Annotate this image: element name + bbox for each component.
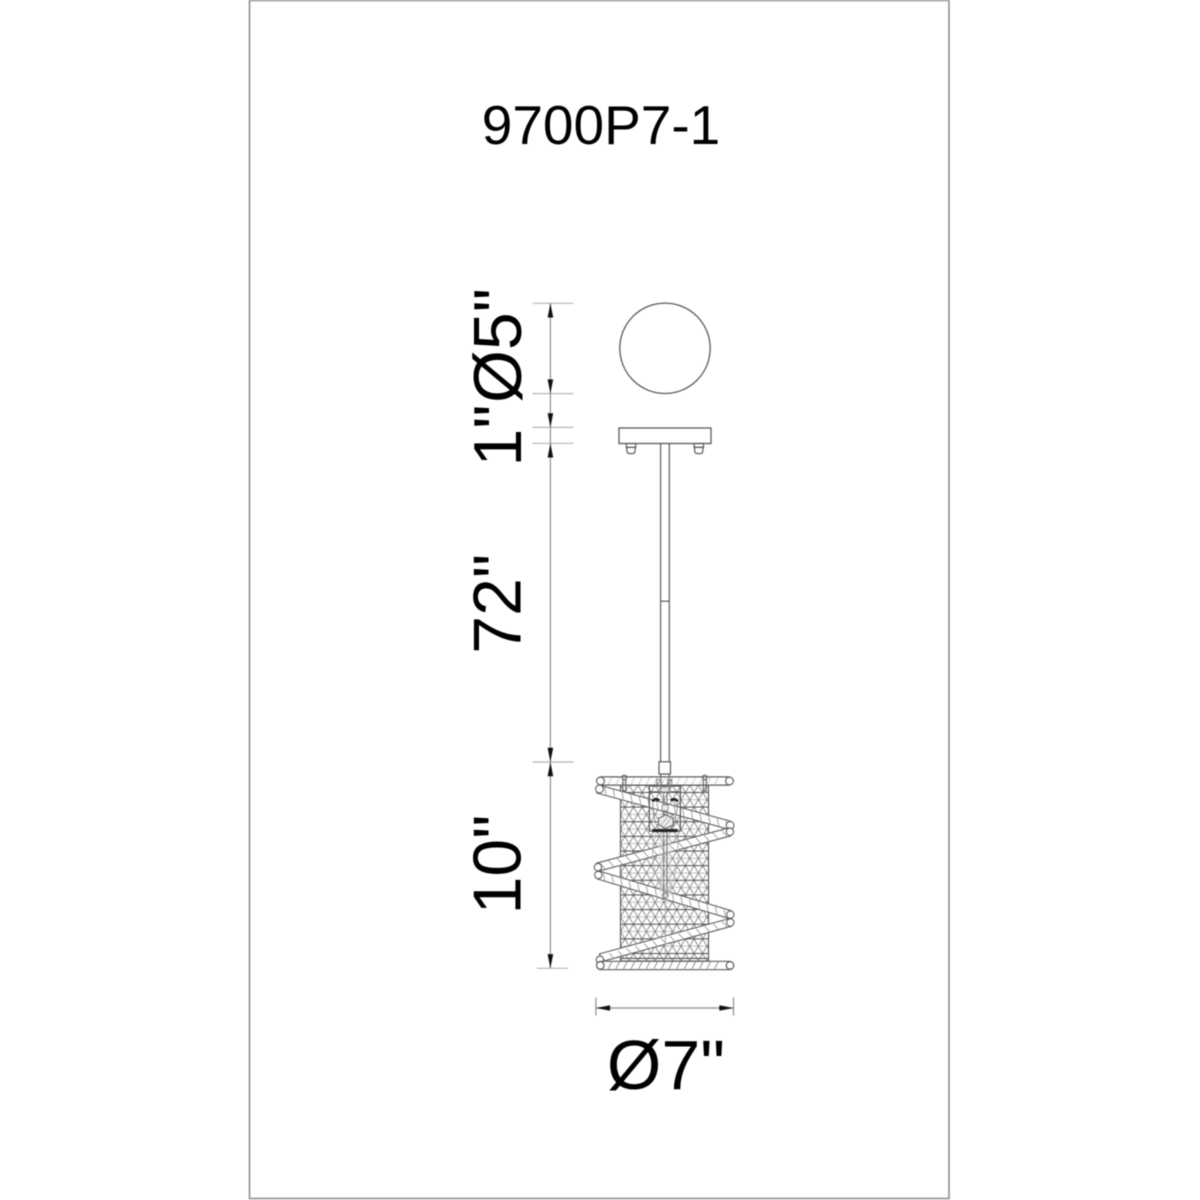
svg-text:1": 1" [460, 405, 536, 467]
svg-text:9700P7-1: 9700P7-1 [482, 94, 721, 156]
svg-text:Ø5": Ø5" [460, 288, 536, 403]
svg-text:72": 72" [460, 554, 536, 654]
svg-text:Ø7": Ø7" [607, 1026, 725, 1104]
svg-text:10": 10" [460, 815, 536, 915]
